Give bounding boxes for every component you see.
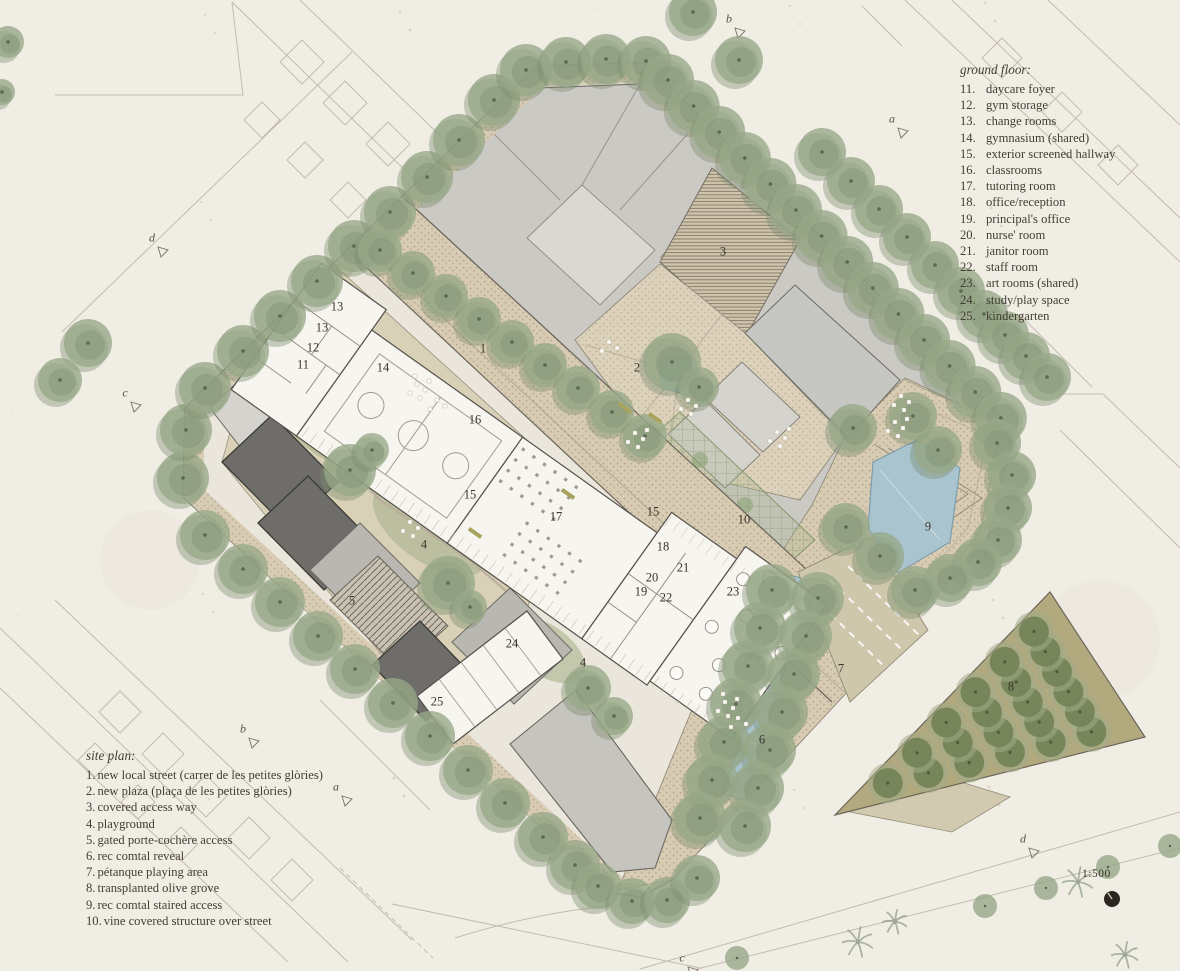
legend-item-number: 17. [960, 178, 986, 194]
legend-item-number: 18. [960, 194, 986, 210]
plan-number-label: 6 [759, 733, 765, 748]
legend-item: 10.vine covered structure over street [86, 913, 323, 929]
legend-item: 1.new local street (carrer de les petite… [86, 767, 323, 783]
legend-site-plan-title: site plan: [86, 748, 323, 764]
plan-number-label: 7 [838, 662, 844, 677]
plan-number-label: 4 [421, 538, 427, 553]
plan-number-label: 13 [331, 300, 344, 315]
legend-item-label: new local street (carrer de les petites … [97, 768, 323, 782]
palm-tree-icon [1111, 941, 1138, 968]
olive-tree [926, 702, 966, 742]
plan-number-label: 17 [550, 510, 563, 525]
legend-item-label: covered access way [97, 800, 196, 814]
section-marker: a [889, 112, 895, 127]
legend-item-number: 21. [960, 243, 986, 259]
olive-tree [897, 733, 937, 773]
section-marker: d [1020, 832, 1026, 847]
legend-item: 18.office/reception [960, 194, 1115, 210]
legend-item-label: principal's office [986, 212, 1070, 226]
section-marker: b [726, 12, 732, 27]
legend-item-label: exterior screened hallway [986, 147, 1115, 161]
street-tree [973, 894, 997, 918]
legend-item-number: 19. [960, 211, 986, 227]
south-east-context [725, 834, 1180, 970]
tree [34, 358, 82, 407]
legend-item: 2.new plaza (plaça de les petites glòrie… [86, 783, 323, 799]
legend-item-number: 22. [960, 259, 986, 275]
legend-item-number: 15. [960, 146, 986, 162]
plan-number-label: 5 [349, 594, 355, 609]
legend-item: 3.covered access way [86, 799, 323, 815]
scale-label: 1:500 [1082, 868, 1111, 880]
legend-ground-floor: ground floor: 11.daycare foyer12.gym sto… [960, 62, 1115, 324]
legend-item: 20.nurse' room [960, 227, 1115, 243]
legend-item-number: 6. [86, 848, 95, 864]
tree [711, 36, 763, 89]
legend-item-number: 7. [86, 864, 95, 880]
legend-item: 11.daycare foyer [960, 81, 1115, 97]
legend-item: 14.gymnasium (shared) [960, 130, 1115, 146]
plan-number-label: 20 [646, 571, 659, 586]
legend-item-number: 23. [960, 275, 986, 291]
legend-item-label: tutoring room [986, 179, 1056, 193]
legend-item-number: 5. [86, 832, 95, 848]
plan-number-label: 16 [469, 413, 482, 428]
plan-number-label: 25 [431, 695, 444, 710]
legend-item: 17.tutoring room [960, 178, 1115, 194]
legend-item-label: change rooms [986, 114, 1056, 128]
legend-item: 4.playground [86, 816, 323, 832]
tree [0, 26, 24, 63]
legend-item: 13.change rooms [960, 113, 1115, 129]
legend-item: 19.principal's office [960, 211, 1115, 227]
legend-item: 8.transplanted olive grove [86, 880, 323, 896]
legend-item-label: study/play space [986, 293, 1070, 307]
plan-number-label: 23 [727, 585, 740, 600]
legend-item-label: classrooms [986, 163, 1042, 177]
plan-number-label: 15 [647, 505, 660, 520]
legend-item-number: 1. [86, 767, 95, 783]
section-marker: c [122, 386, 127, 401]
plan-number-label: 24 [506, 637, 519, 652]
legend-item-number: 9. [86, 897, 95, 913]
plan-number-label: 10 [738, 513, 751, 528]
plan-number-label: 3 [720, 245, 726, 260]
legend-item: 22.staff room [960, 259, 1115, 275]
legend-site-plan: site plan: 1.new local street (carrer de… [86, 748, 323, 929]
legend-item-label: playground [97, 817, 154, 831]
legend-item-label: nurse' room [986, 228, 1045, 242]
plan-number-label: 11 [297, 358, 309, 373]
legend-item-number: 10. [86, 913, 102, 929]
legend-item-number: 25. [960, 308, 986, 324]
plan-number-label: 2 [634, 361, 640, 376]
legend-item-number: 16. [960, 162, 986, 178]
legend-item-label: rec comtal reveal [97, 849, 184, 863]
legend-item-number: 24. [960, 292, 986, 308]
legend-item-label: vine covered structure over street [104, 914, 272, 928]
legend-item-label: art rooms (shared) [986, 276, 1078, 290]
street-tree [1158, 834, 1180, 858]
legend-item-label: gymnasium (shared) [986, 131, 1089, 145]
palm-tree-icon [842, 926, 873, 957]
legend-item-label: new plaza (plaça de les petites glòries) [97, 784, 291, 798]
legend-site-plan-items: 1.new local street (carrer de les petite… [86, 767, 323, 929]
plan-number-label: 15 [464, 488, 477, 503]
section-marker: b [240, 722, 246, 737]
plan-number-label: 14 [377, 361, 390, 376]
section-marker: d [149, 231, 155, 246]
legend-item-number: 11. [960, 81, 986, 97]
legend-item: 25.kindergarten [960, 308, 1115, 324]
plan-number-label: 9 [925, 520, 931, 535]
plan-number-label: 19 [635, 585, 648, 600]
legend-item-number: 4. [86, 816, 95, 832]
tree [0, 79, 15, 110]
legend-item: 24.study/play space [960, 292, 1115, 308]
tree [665, 0, 717, 41]
legend-item: 23.art rooms (shared) [960, 275, 1115, 291]
legend-item: 21.janitor room [960, 243, 1115, 259]
legend-item-label: pétanque playing area [97, 865, 208, 879]
legend-item-label: transplanted olive grove [97, 881, 219, 895]
olive-tree [1014, 612, 1054, 652]
legend-item: 15.exterior screened hallway [960, 146, 1115, 162]
legend-ground-floor-items: 11.daycare foyer12.gym storage13.change … [960, 81, 1115, 324]
plan-number-label: 4 [580, 656, 586, 671]
plan-number-label: 13 [316, 321, 329, 336]
legend-item: 16.classrooms [960, 162, 1115, 178]
plan-number-label: 1 [480, 342, 486, 357]
palm-tree-icon [882, 909, 907, 934]
section-marker: a [333, 780, 339, 795]
street-tree [725, 946, 749, 970]
plan-number-label: 12 [307, 341, 320, 356]
legend-item-number: 12. [960, 97, 986, 113]
section-marker: c [679, 951, 684, 966]
legend-item-label: kindergarten [986, 309, 1049, 323]
legend-item-label: office/reception [986, 195, 1066, 209]
plan-number-label: 8 [1008, 680, 1014, 695]
legend-item: 7.pétanque playing area [86, 864, 323, 880]
legend-item: 12.gym storage [960, 97, 1115, 113]
legend-item-number: 3. [86, 799, 95, 815]
legend-item-label: rec comtal staired access [97, 898, 222, 912]
legend-item-label: gated porte-cochère access [97, 833, 232, 847]
plan-number-label: 22 [660, 591, 673, 606]
legend-ground-floor-title: ground floor: [960, 62, 1115, 78]
north-dot-icon [1104, 891, 1120, 907]
legend-item-number: 8. [86, 880, 95, 896]
legend-item-number: 20. [960, 227, 986, 243]
legend-item-number: 14. [960, 130, 986, 146]
legend-item: 9.rec comtal staired access [86, 897, 323, 913]
olive-tree [868, 763, 908, 803]
plan-number-label: 18 [657, 540, 670, 555]
legend-item-label: janitor room [986, 244, 1049, 258]
site-plan-page: ground floor: 11.daycare foyer12.gym sto… [0, 0, 1180, 971]
legend-item-label: gym storage [986, 98, 1048, 112]
olive-tree [955, 672, 995, 712]
legend-item-label: daycare foyer [986, 82, 1055, 96]
legend-item: 5.gated porte-cochère access [86, 832, 323, 848]
olive-tree [985, 642, 1025, 682]
legend-item-label: staff room [986, 260, 1038, 274]
street-tree [1034, 876, 1058, 900]
plan-number-label: 21 [677, 561, 690, 576]
legend-item-number: 2. [86, 783, 95, 799]
legend-item-number: 13. [960, 113, 986, 129]
legend-item: 6.rec comtal reveal [86, 848, 323, 864]
